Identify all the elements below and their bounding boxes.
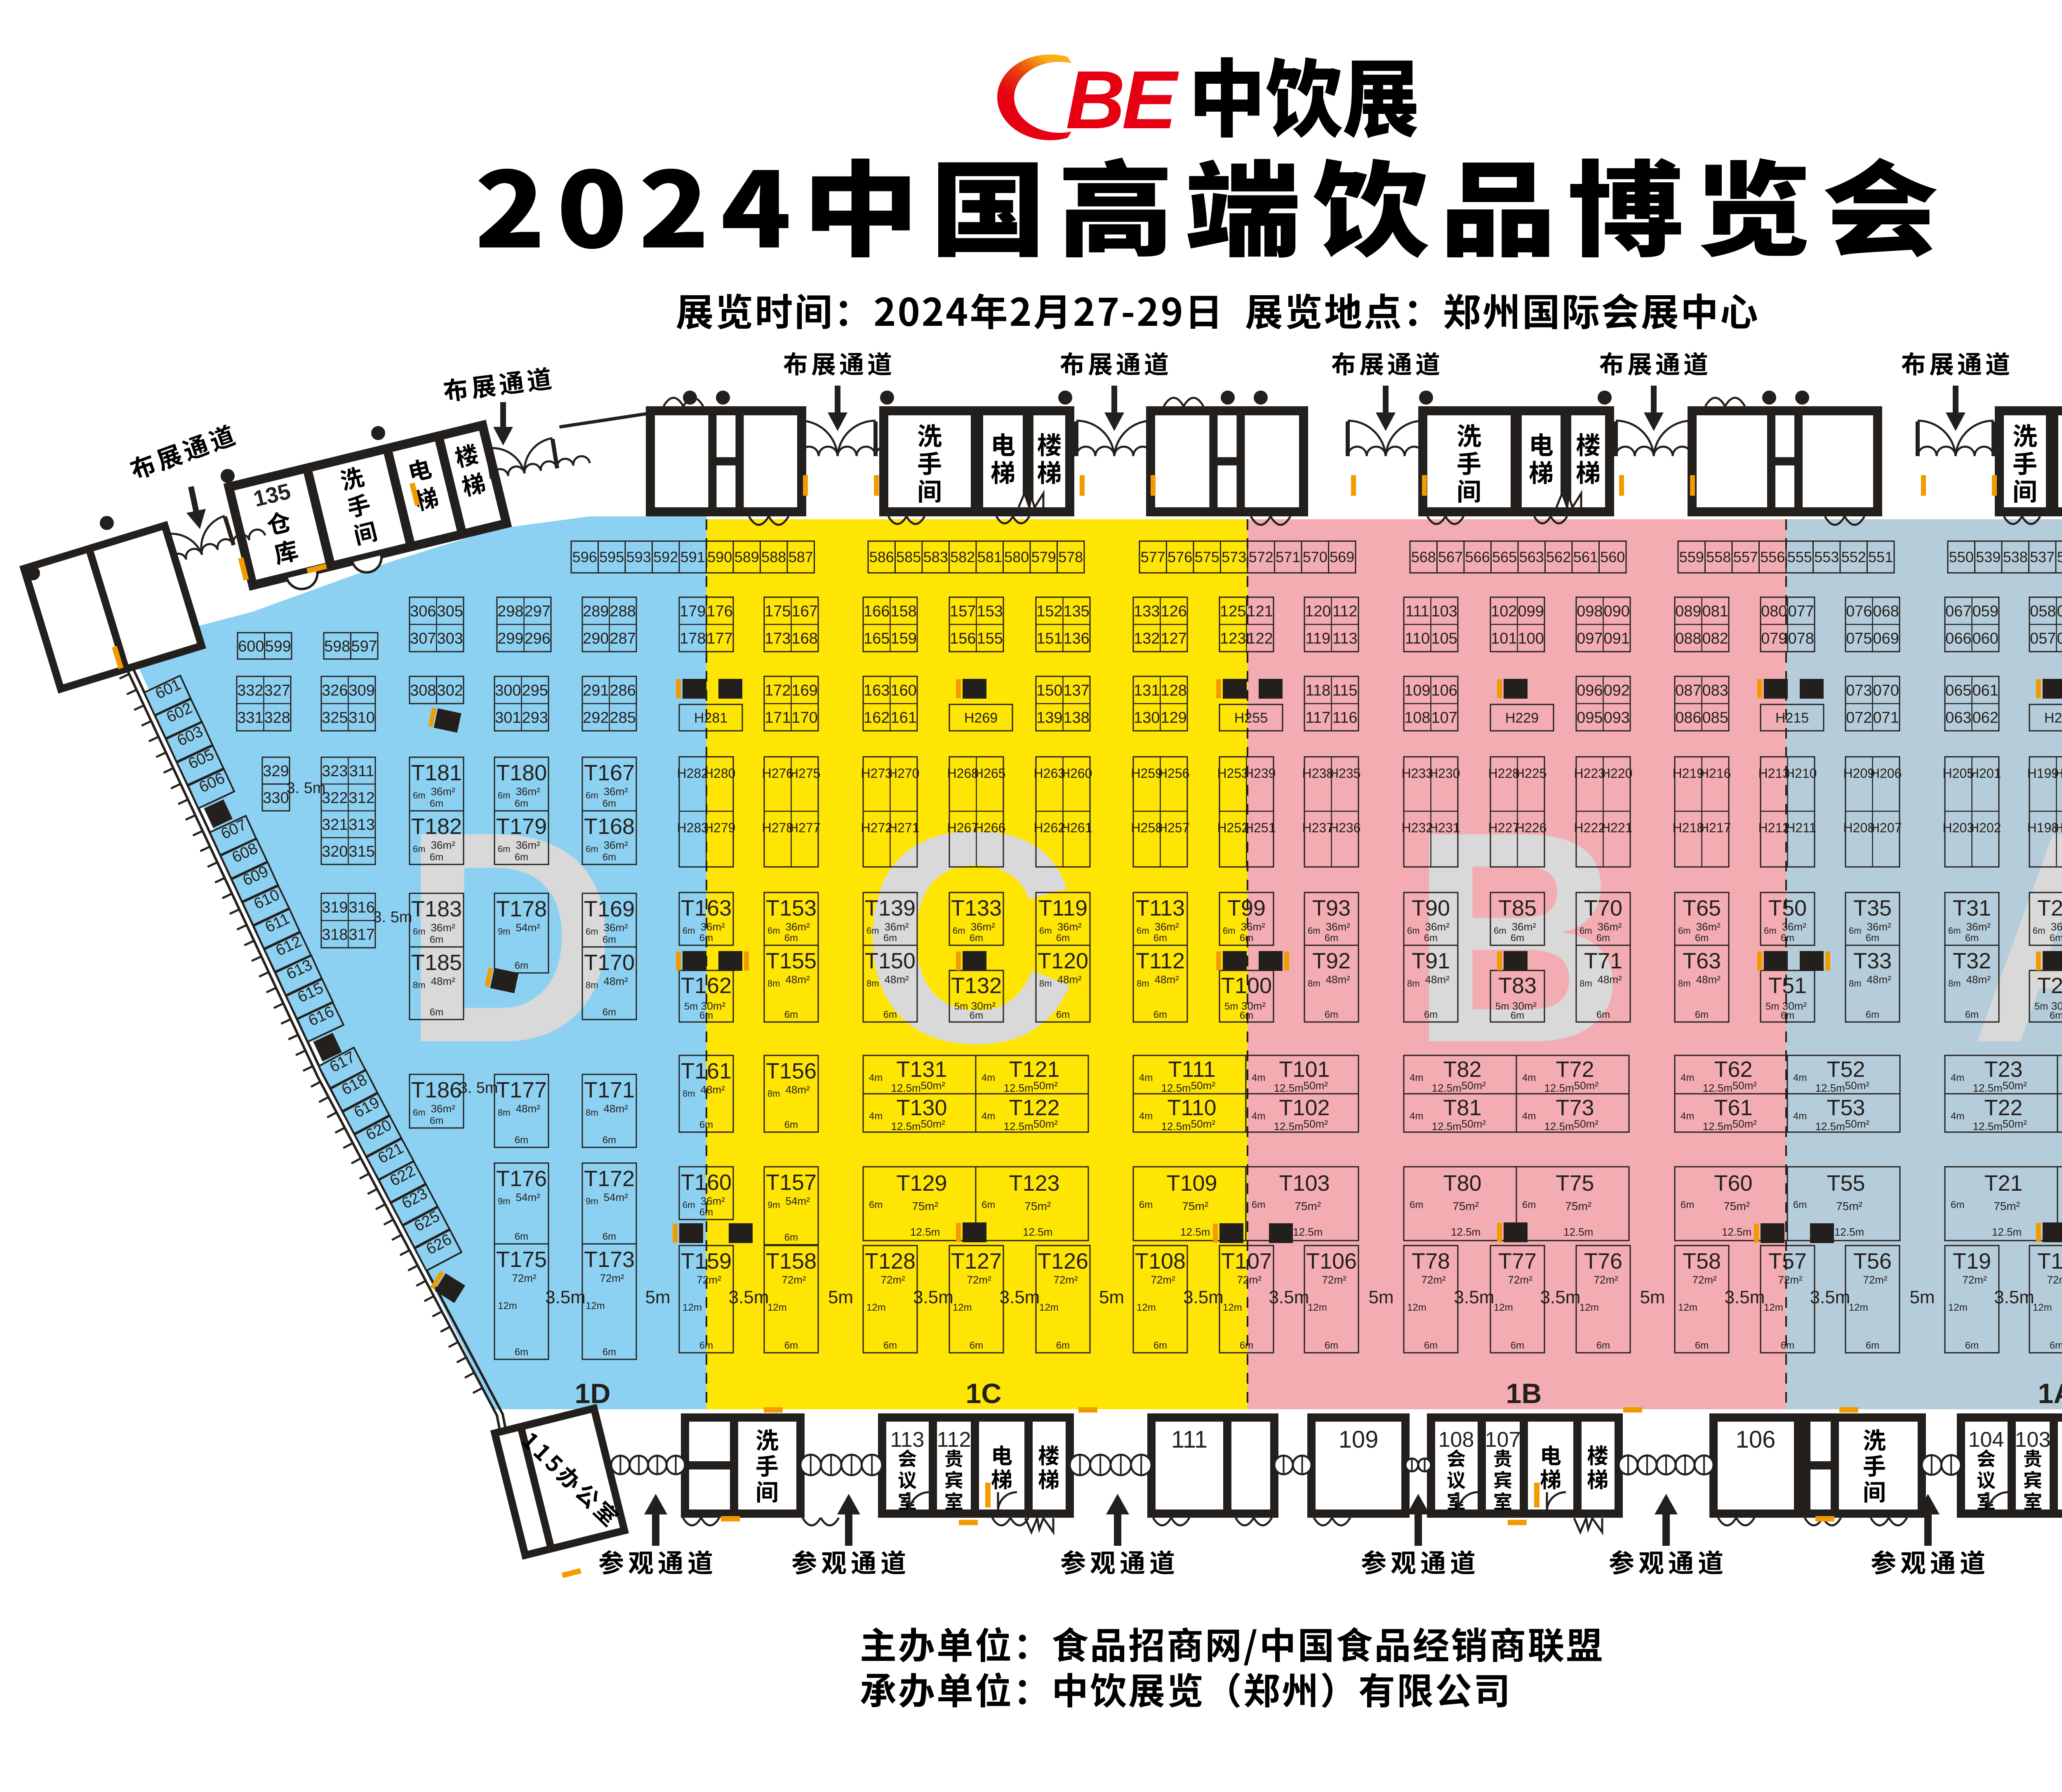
svg-text:6m: 6m [699,1119,713,1130]
svg-text:332: 332 [237,682,263,699]
svg-text:107: 107 [1485,1428,1521,1452]
svg-text:75m²: 75m² [912,1200,938,1213]
svg-text:066: 066 [1945,630,1971,647]
svg-text:36m²: 36m² [1425,921,1450,933]
svg-text:36m²: 36m² [701,1195,725,1207]
svg-text:T102: T102 [1279,1095,1330,1120]
svg-text:12.5m: 12.5m [910,1226,940,1238]
svg-text:6m: 6m [1424,1340,1438,1351]
svg-text:48m²: 48m² [885,973,909,986]
svg-text:6m: 6m [430,1115,443,1126]
svg-text:082: 082 [1702,630,1728,647]
svg-text:119: 119 [1306,630,1331,647]
svg-text:T57: T57 [1768,1249,1807,1274]
svg-text:587: 587 [789,549,813,565]
svg-text:130: 130 [1134,709,1160,726]
svg-text:5m: 5m [954,1001,968,1012]
svg-text:48m²: 48m² [1155,973,1179,986]
svg-text:54m²: 54m² [516,921,541,934]
svg-text:327: 327 [264,682,290,699]
svg-text:6m: 6m [1223,925,1236,936]
svg-text:582: 582 [950,549,975,565]
svg-text:6m: 6m [1793,1199,1807,1210]
svg-text:6m: 6m [413,926,426,937]
svg-text:3.5m: 3.5m [1540,1287,1581,1307]
svg-text:6m: 6m [2033,925,2046,936]
svg-text:T173: T173 [584,1247,635,1272]
svg-text:12.5m: 12.5m [1180,1226,1210,1238]
svg-text:6m: 6m [1153,1009,1167,1020]
svg-text:305: 305 [437,603,463,620]
svg-text:170: 170 [791,709,817,726]
svg-text:H230: H230 [1429,766,1460,781]
svg-text:36m²: 36m² [1241,921,1266,933]
svg-text:4m: 4m [869,1111,883,1122]
svg-text:6m: 6m [1056,1009,1070,1020]
svg-text:071: 071 [1873,709,1899,726]
svg-text:169: 169 [791,682,817,699]
svg-text:104: 104 [1968,1428,2004,1452]
svg-text:12.5m: 12.5m [1432,1120,1462,1133]
svg-text:72m²: 72m² [1863,1274,1888,1286]
svg-text:T18: T18 [2037,1249,2062,1274]
svg-text:T156: T156 [766,1059,817,1083]
svg-text:H226: H226 [1515,820,1547,835]
svg-text:303: 303 [437,630,463,647]
svg-text:6m: 6m [515,798,528,809]
svg-text:6m: 6m [683,925,695,936]
svg-text:106: 106 [1431,682,1457,699]
svg-text:328: 328 [264,709,290,726]
svg-text:573: 573 [1222,549,1246,565]
svg-text:6m: 6m [1325,932,1338,944]
svg-text:062: 062 [1972,709,1998,726]
svg-text:065: 065 [1945,682,1971,699]
svg-text:080: 080 [1761,603,1787,620]
svg-text:6m: 6m [699,1010,713,1021]
svg-text:36m²: 36m² [1782,921,1807,933]
svg-text:6m: 6m [515,960,528,971]
svg-text:T177: T177 [496,1078,547,1102]
svg-text:6m: 6m [784,1340,798,1351]
svg-text:6m: 6m [498,790,511,801]
svg-text:8m: 8m [1579,978,1592,989]
svg-text:600: 600 [238,638,264,655]
svg-text:5m: 5m [1765,1001,1779,1012]
svg-text:6m: 6m [1240,932,1253,944]
svg-text:H221: H221 [1601,820,1633,835]
svg-text:6m: 6m [1522,1199,1536,1210]
svg-text:8m: 8m [866,978,879,989]
svg-text:T31: T31 [1953,896,1991,921]
svg-text:75m²: 75m² [1024,1200,1051,1213]
svg-text:331: 331 [237,709,263,726]
svg-text:6m: 6m [1056,932,1070,944]
svg-text:583: 583 [923,549,948,565]
svg-text:108: 108 [1404,709,1430,726]
svg-text:289: 289 [583,603,609,620]
svg-text:539: 539 [1976,549,2001,565]
svg-text:6m: 6m [1240,1010,1253,1021]
svg-text:168: 168 [791,630,817,647]
svg-text:111: 111 [1405,603,1429,620]
svg-text:48m²: 48m² [516,1102,541,1115]
svg-text:293: 293 [522,709,548,726]
svg-text:072: 072 [1846,709,1872,726]
svg-text:12m: 12m [586,1300,605,1312]
svg-text:172: 172 [765,682,791,699]
svg-text:5m: 5m [1909,1287,1935,1307]
svg-text:72m²: 72m² [1151,1274,1175,1286]
svg-text:H239: H239 [1244,766,1276,781]
svg-text:6m: 6m [515,1347,528,1358]
svg-text:3.5m: 3.5m [913,1287,953,1307]
svg-text:H225: H225 [1515,766,1547,781]
svg-text:6m: 6m [784,1232,798,1243]
svg-text:6m: 6m [430,798,443,809]
svg-text:T122: T122 [1009,1095,1059,1120]
svg-text:075: 075 [1846,630,1872,647]
svg-text:061: 061 [1972,682,1998,699]
svg-text:321: 321 [322,816,348,834]
svg-text:48m²: 48m² [786,1083,810,1096]
svg-text:H216: H216 [1700,766,1731,781]
svg-text:6m: 6m [1410,1199,1423,1210]
svg-text:72m²: 72m² [1421,1274,1446,1286]
svg-text:T77: T77 [1498,1249,1537,1274]
svg-text:325: 325 [322,709,348,726]
svg-text:36m²: 36m² [1598,921,1622,933]
svg-text:109: 109 [1339,1426,1379,1453]
svg-text:72m²: 72m² [2047,1274,2062,1286]
svg-text:089: 089 [1675,603,1701,620]
svg-text:50m²: 50m² [1845,1079,1870,1092]
svg-text:6m: 6m [1153,1340,1167,1351]
svg-text:562: 562 [1546,549,1571,565]
svg-text:158: 158 [890,603,916,620]
svg-text:H217: H217 [1700,820,1731,835]
svg-text:12.5m: 12.5m [1544,1120,1574,1133]
svg-text:H251: H251 [1244,820,1276,835]
svg-text:318: 318 [322,926,348,943]
svg-text:T130: T130 [896,1095,947,1120]
svg-text:3. 5m: 3. 5m [286,779,325,797]
svg-text:090: 090 [1603,603,1629,620]
svg-text:105: 105 [1431,630,1457,647]
svg-text:T179: T179 [496,814,547,839]
svg-text:287: 287 [610,630,636,647]
svg-text:48m²: 48m² [604,975,628,987]
svg-text:6m: 6m [603,1347,616,1358]
svg-text:72m²: 72m² [967,1274,991,1286]
svg-text:6m: 6m [1252,1199,1265,1210]
svg-text:057: 057 [2030,630,2056,647]
svg-text:12m: 12m [1849,1302,1868,1313]
svg-text:6m: 6m [1681,1199,1694,1210]
svg-text:162: 162 [864,709,890,726]
svg-text:8m: 8m [767,1088,780,1099]
svg-text:36m²: 36m² [701,921,725,933]
svg-text:H236: H236 [1329,820,1361,835]
svg-text:T72: T72 [1556,1057,1594,1082]
svg-text:6m: 6m [1965,1009,1979,1020]
svg-text:538: 538 [2003,549,2028,565]
svg-text:T172: T172 [584,1166,635,1191]
svg-text:H261: H261 [1061,820,1092,835]
svg-text:6m: 6m [1494,925,1506,936]
svg-text:179: 179 [680,603,706,620]
svg-text:T63: T63 [1683,949,1721,973]
svg-text:36m²: 36m² [604,785,628,798]
svg-text:72m²: 72m² [1594,1274,1618,1286]
svg-text:175: 175 [765,603,791,620]
svg-text:T178: T178 [496,897,547,921]
svg-text:6m: 6m [1764,925,1777,936]
svg-text:310: 310 [348,709,374,726]
svg-text:565: 565 [1492,549,1517,565]
svg-text:6m: 6m [413,790,426,801]
svg-text:T129: T129 [896,1171,947,1196]
svg-text:50m²: 50m² [1191,1118,1216,1130]
svg-text:085: 085 [1702,709,1728,726]
svg-text:151: 151 [1036,630,1062,647]
svg-text:T153: T153 [766,896,817,921]
svg-text:48m²: 48m² [1057,973,1082,986]
svg-text:BE: BE [1066,54,1179,146]
svg-text:72m²: 72m² [1778,1274,1803,1286]
svg-text:12m: 12m [1308,1302,1327,1313]
svg-text:6m: 6m [1056,1340,1070,1351]
svg-text:T163: T163 [681,896,732,921]
svg-text:155: 155 [977,630,1003,647]
svg-text:T55: T55 [1827,1171,1865,1196]
svg-text:75m²: 75m² [1295,1200,1321,1213]
svg-text:6m: 6m [2050,1010,2062,1021]
svg-text:6m: 6m [869,1199,883,1210]
svg-text:5m: 5m [1099,1287,1124,1307]
svg-text:291: 291 [583,682,609,699]
svg-text:6m: 6m [1866,932,1879,944]
svg-text:6m: 6m [784,932,798,944]
svg-text:48m²: 48m² [1326,973,1351,986]
svg-text:75m²: 75m² [1565,1200,1591,1213]
svg-text:36m²: 36m² [1326,921,1351,933]
svg-text:6m: 6m [1678,925,1691,936]
svg-text:069: 069 [1873,630,1899,647]
svg-text:T120: T120 [1038,949,1088,973]
svg-text:153: 153 [977,603,1003,620]
svg-text:4m: 4m [1522,1111,1536,1122]
svg-text:8m: 8m [1039,978,1052,989]
svg-text:578: 578 [1058,549,1083,565]
svg-text:36m²: 36m² [431,785,456,798]
svg-text:6m: 6m [866,925,879,936]
svg-text:T85: T85 [1498,896,1537,921]
svg-text:589: 589 [734,549,759,565]
svg-text:T100: T100 [1221,973,1272,998]
svg-text:316: 316 [348,899,374,916]
svg-text:599: 599 [265,638,291,655]
svg-text:T128: T128 [865,1249,916,1274]
svg-text:T21: T21 [1984,1171,2022,1196]
svg-text:T150: T150 [865,949,916,973]
svg-text:6m: 6m [883,932,897,944]
svg-text:598: 598 [324,638,350,655]
svg-text:4m: 4m [1252,1111,1265,1122]
svg-text:6m: 6m [586,844,598,854]
svg-text:12m: 12m [767,1302,787,1313]
svg-text:H212: H212 [1758,820,1790,835]
svg-text:12.5m: 12.5m [1544,1082,1574,1094]
svg-text:H275: H275 [789,766,821,781]
svg-text:109: 109 [1404,682,1430,699]
svg-text:8m: 8m [1407,978,1420,989]
svg-text:6m: 6m [1511,932,1524,944]
svg-text:1C: 1C [966,1378,1002,1409]
svg-text:113: 113 [890,1428,925,1452]
svg-text:120: 120 [1305,603,1331,620]
svg-text:111: 111 [1171,1426,1208,1453]
svg-text:48m²: 48m² [431,975,456,987]
svg-text:6m: 6m [1511,1340,1524,1351]
svg-text:590: 590 [707,549,732,565]
svg-text:T90: T90 [1412,896,1450,921]
svg-text:292: 292 [583,709,609,726]
svg-text:068: 068 [1873,603,1899,620]
svg-text:48m²: 48m² [1867,973,1892,986]
svg-text:12m: 12m [1579,1302,1599,1313]
svg-text:4m: 4m [869,1072,883,1083]
svg-text:12m: 12m [1137,1302,1156,1313]
svg-text:T33: T33 [1853,949,1892,973]
svg-text:8m: 8m [586,1107,598,1118]
svg-text:T80: T80 [1443,1171,1481,1196]
svg-text:596: 596 [572,549,597,565]
svg-text:H235: H235 [1329,766,1361,781]
svg-text:12.5m: 12.5m [891,1120,921,1133]
svg-text:4m: 4m [982,1111,995,1122]
svg-text:073: 073 [1846,682,1872,699]
svg-text:H220: H220 [1601,766,1633,781]
svg-text:3.5m: 3.5m [729,1287,769,1307]
svg-text:6m: 6m [982,1199,995,1210]
svg-text:058: 058 [2030,603,2056,620]
svg-text:586: 586 [869,549,894,565]
svg-text:317: 317 [348,926,374,943]
svg-text:H229: H229 [1505,710,1539,726]
svg-text:H255: H255 [1234,710,1268,726]
svg-text:136: 136 [1063,630,1089,647]
svg-text:6m: 6m [1407,925,1420,936]
svg-text:139: 139 [1036,709,1062,726]
svg-text:T158: T158 [766,1249,817,1274]
svg-text:6m: 6m [1948,925,1961,936]
svg-text:T56: T56 [1853,1249,1892,1274]
svg-text:6m: 6m [1866,1009,1879,1020]
svg-text:12.5m: 12.5m [1161,1120,1191,1133]
svg-text:4m: 4m [1410,1111,1423,1122]
svg-text:12m: 12m [2033,1302,2052,1313]
svg-text:173: 173 [765,630,791,647]
svg-text:T175: T175 [496,1247,547,1272]
svg-text:H231: H231 [1429,820,1460,835]
svg-text:9m: 9m [498,926,511,937]
svg-text:T99: T99 [1227,896,1266,921]
svg-text:4m: 4m [1139,1072,1153,1083]
svg-text:6m: 6m [586,790,598,801]
svg-text:556: 556 [1760,549,1785,565]
svg-text:091: 091 [1603,630,1629,647]
svg-text:6m: 6m [1866,1340,1879,1351]
svg-text:6m: 6m [413,1107,426,1118]
svg-text:6m: 6m [603,852,616,863]
svg-text:T109: T109 [1166,1171,1217,1196]
svg-text:552: 552 [1841,549,1866,565]
svg-text:6m: 6m [1139,1199,1153,1210]
svg-text:121: 121 [1247,603,1273,620]
svg-text:553: 553 [1814,549,1839,565]
svg-text:75m²: 75m² [1994,1200,2020,1213]
svg-text:6m: 6m [2050,1340,2062,1351]
svg-text:50m²: 50m² [2003,1079,2027,1092]
svg-text:567: 567 [1438,549,1463,565]
svg-text:H210: H210 [1785,766,1817,781]
svg-text:54m²: 54m² [516,1191,541,1203]
svg-text:48m²: 48m² [1425,973,1450,986]
svg-text:T107: T107 [1221,1249,1272,1274]
svg-text:588: 588 [761,549,786,565]
svg-text:H206: H206 [1870,766,1902,781]
svg-text:9m: 9m [498,1196,511,1206]
svg-text:T51: T51 [1768,973,1807,998]
svg-text:572: 572 [1249,549,1273,565]
svg-text:H266: H266 [974,820,1006,835]
svg-text:75m²: 75m² [1182,1200,1208,1213]
svg-text:103: 103 [1431,603,1457,620]
svg-text:T133: T133 [951,896,1002,921]
svg-text:12m: 12m [1764,1302,1783,1313]
svg-text:8m: 8m [413,980,426,990]
svg-text:123: 123 [1220,630,1246,647]
svg-text:557: 557 [1733,549,1758,565]
svg-text:72m²: 72m² [600,1272,624,1284]
svg-text:50m²: 50m² [1462,1118,1486,1130]
svg-text:T71: T71 [1584,949,1622,973]
svg-text:099: 099 [1518,603,1544,620]
svg-text:H256: H256 [1158,766,1190,781]
svg-text:133: 133 [1134,603,1160,620]
svg-text:6m: 6m [515,1231,528,1242]
svg-text:6m: 6m [430,1007,443,1018]
svg-text:1A: 1A [2038,1378,2062,1409]
svg-text:T169: T169 [584,897,635,921]
svg-text:122: 122 [1247,630,1273,647]
svg-text:12m: 12m [1494,1302,1513,1313]
svg-text:132: 132 [1134,630,1160,647]
svg-text:4m: 4m [982,1072,995,1083]
svg-text:167: 167 [791,603,817,620]
svg-text:107: 107 [1431,709,1457,726]
svg-text:H270: H270 [888,766,920,781]
svg-text:308: 308 [410,682,436,699]
svg-text:117: 117 [1306,709,1331,726]
svg-text:36m²: 36m² [604,839,628,851]
svg-text:5m: 5m [828,1287,853,1307]
svg-text:1B: 1B [1506,1378,1542,1409]
svg-text:H201: H201 [1970,766,2001,781]
svg-text:9m: 9m [586,1196,598,1206]
svg-text:537: 537 [2030,549,2055,565]
